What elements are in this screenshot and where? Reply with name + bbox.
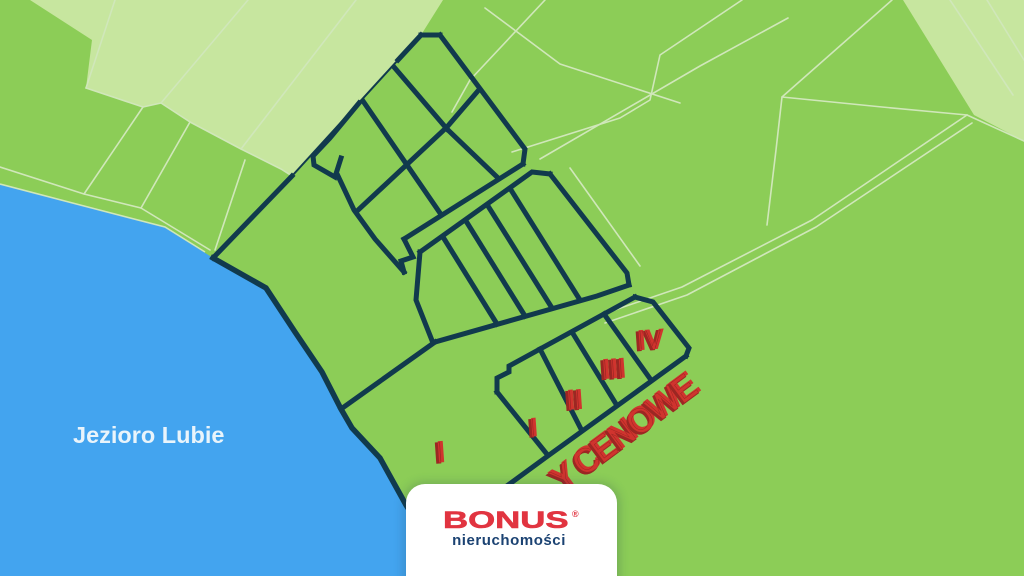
svg-text:IV: IV (637, 323, 666, 356)
svg-text:III: III (601, 352, 626, 385)
svg-text:BONUS: BONUS (443, 507, 569, 534)
svg-text:®: ® (572, 509, 579, 519)
svg-text:II: II (566, 383, 584, 415)
svg-text:Jezioro Lubie: Jezioro Lubie (73, 422, 224, 448)
svg-text:nieruchomości: nieruchomości (452, 532, 566, 549)
